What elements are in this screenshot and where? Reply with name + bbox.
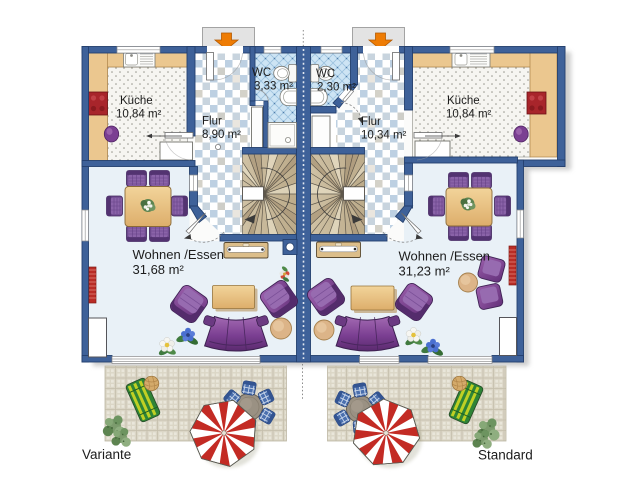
svg-text:Flur: Flur [202,116,222,128]
svg-text:Küche: Küche [120,95,153,107]
svg-text:10,84 m²: 10,84 m² [116,109,162,121]
svg-text:10,34 m²: 10,34 m² [361,130,407,142]
svg-text:3,33 m²: 3,33 m² [254,81,293,93]
svg-text:2,30 m²: 2,30 m² [317,82,356,94]
svg-text:10,84 m²: 10,84 m² [446,109,492,121]
svg-text:WC: WC [316,68,335,80]
svg-text:Variante: Variante [82,447,131,462]
svg-text:Flur: Flur [361,116,381,128]
svg-text:Wohnen /Essen: Wohnen /Essen [133,247,225,262]
svg-text:31,68 m²: 31,68 m² [133,262,185,277]
svg-text:31,23 m²: 31,23 m² [399,264,451,279]
svg-text:Küche: Küche [447,95,480,107]
svg-text:Standard: Standard [478,448,533,463]
svg-text:Wohnen /Essen: Wohnen /Essen [399,249,491,264]
svg-text:8,90 m²: 8,90 m² [202,129,241,141]
svg-text:WC: WC [252,67,271,79]
